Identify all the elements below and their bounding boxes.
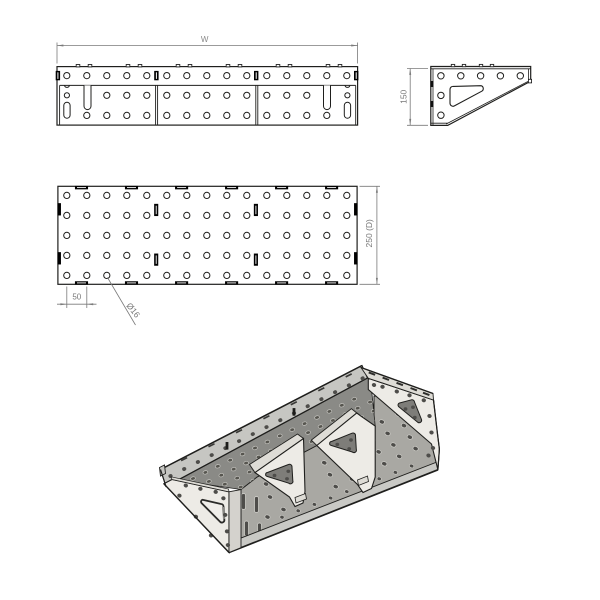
svg-text:50: 50 xyxy=(72,293,81,302)
svg-text:W: W xyxy=(201,35,209,44)
svg-text:150: 150 xyxy=(399,89,409,103)
svg-text:250 (D): 250 (D) xyxy=(364,219,374,248)
